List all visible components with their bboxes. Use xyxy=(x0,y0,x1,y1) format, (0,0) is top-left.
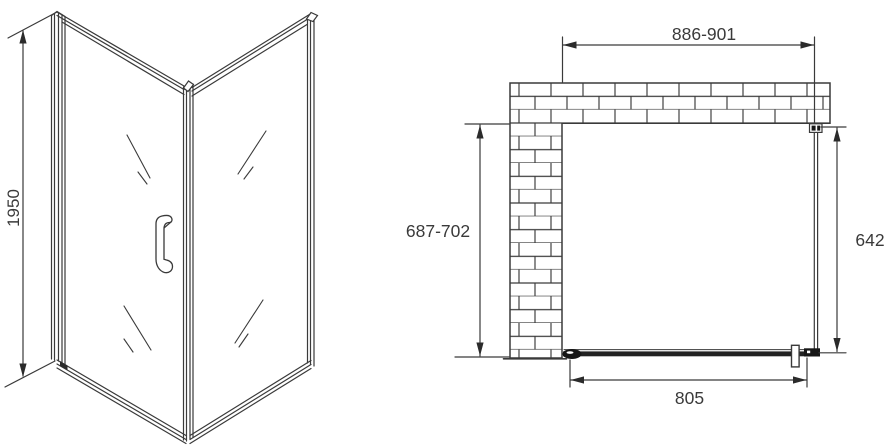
arrowhead-up xyxy=(833,128,840,142)
plan-view: 886-901 687-702 642 805 xyxy=(406,24,885,408)
arrowhead-down xyxy=(19,364,26,378)
door-plan xyxy=(563,345,821,367)
dimension-wall-depth: 687-702 xyxy=(406,124,509,357)
door-width-label: 805 xyxy=(675,388,704,408)
arrowhead-right xyxy=(801,41,815,48)
arrowhead-down xyxy=(476,343,483,357)
extension-line-top xyxy=(8,12,57,38)
side-panel-label: 642 xyxy=(855,230,884,250)
drawing-canvas: 1950 xyxy=(0,0,896,448)
side-panel-plan xyxy=(810,124,823,352)
dimension-door-width: 805 xyxy=(570,358,807,408)
arrowhead-down xyxy=(833,338,840,352)
door-panel xyxy=(52,12,187,444)
opening-width-label: 886-901 xyxy=(672,24,736,44)
brick-wall xyxy=(504,83,831,359)
door-handle-plan xyxy=(792,345,800,367)
technical-drawing: 1950 xyxy=(0,0,896,448)
door-handle-3d xyxy=(156,215,173,272)
dimension-height: 1950 xyxy=(4,12,57,387)
arrowhead-left xyxy=(571,376,585,383)
wall-depth-label: 687-702 xyxy=(406,221,470,241)
bottom-clamp xyxy=(60,361,68,370)
arrowhead-left xyxy=(563,41,577,48)
extension-line-bottom xyxy=(5,361,55,387)
door-corner-fitting xyxy=(804,348,820,356)
height-dimension-label: 1950 xyxy=(4,189,23,227)
door-hinge xyxy=(563,349,582,359)
glass-shine-marks xyxy=(124,131,266,352)
side-panel xyxy=(190,13,318,444)
corner-cap xyxy=(184,81,194,92)
arrowhead-up xyxy=(476,125,483,139)
wall-outline xyxy=(510,83,830,358)
side-top-cap xyxy=(307,13,318,22)
dimension-side-panel: 642 xyxy=(819,127,885,353)
isometric-view: 1950 xyxy=(4,12,318,444)
door-bar xyxy=(563,351,806,356)
corner-post xyxy=(184,81,194,441)
arrowhead-right xyxy=(793,376,807,383)
